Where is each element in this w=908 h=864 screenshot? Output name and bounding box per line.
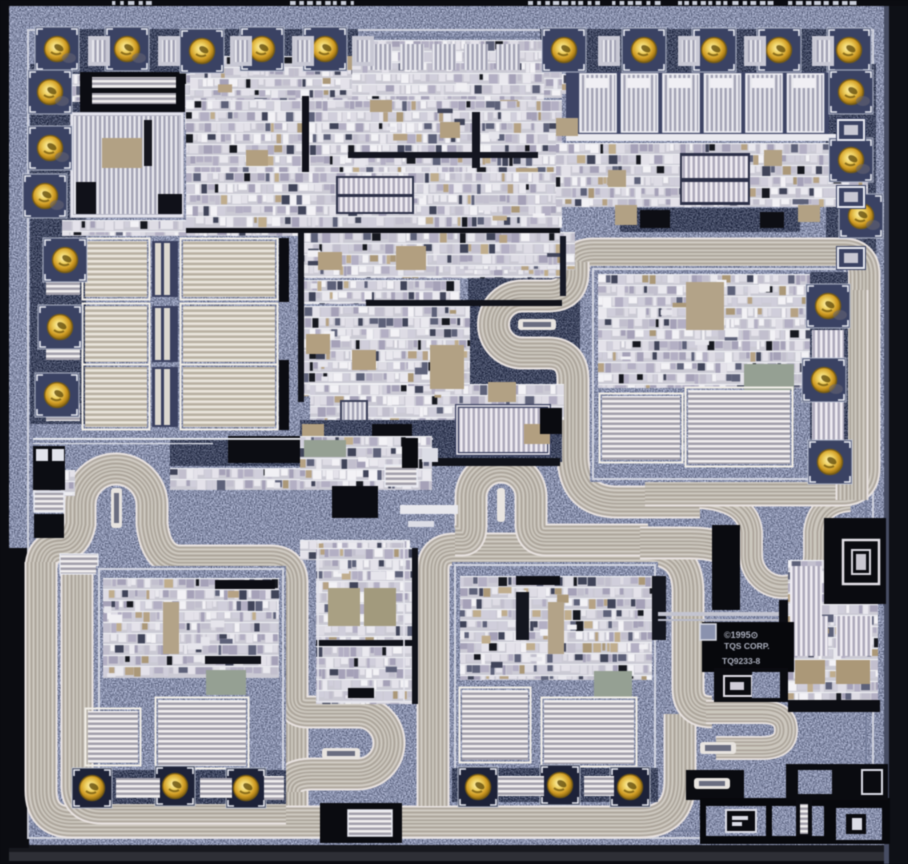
svg-text:©1995⊙: ©1995⊙ bbox=[724, 630, 758, 640]
svg-text:TQS CORP.: TQS CORP. bbox=[724, 641, 770, 651]
svg-text:TQ9233-8: TQ9233-8 bbox=[722, 656, 761, 666]
